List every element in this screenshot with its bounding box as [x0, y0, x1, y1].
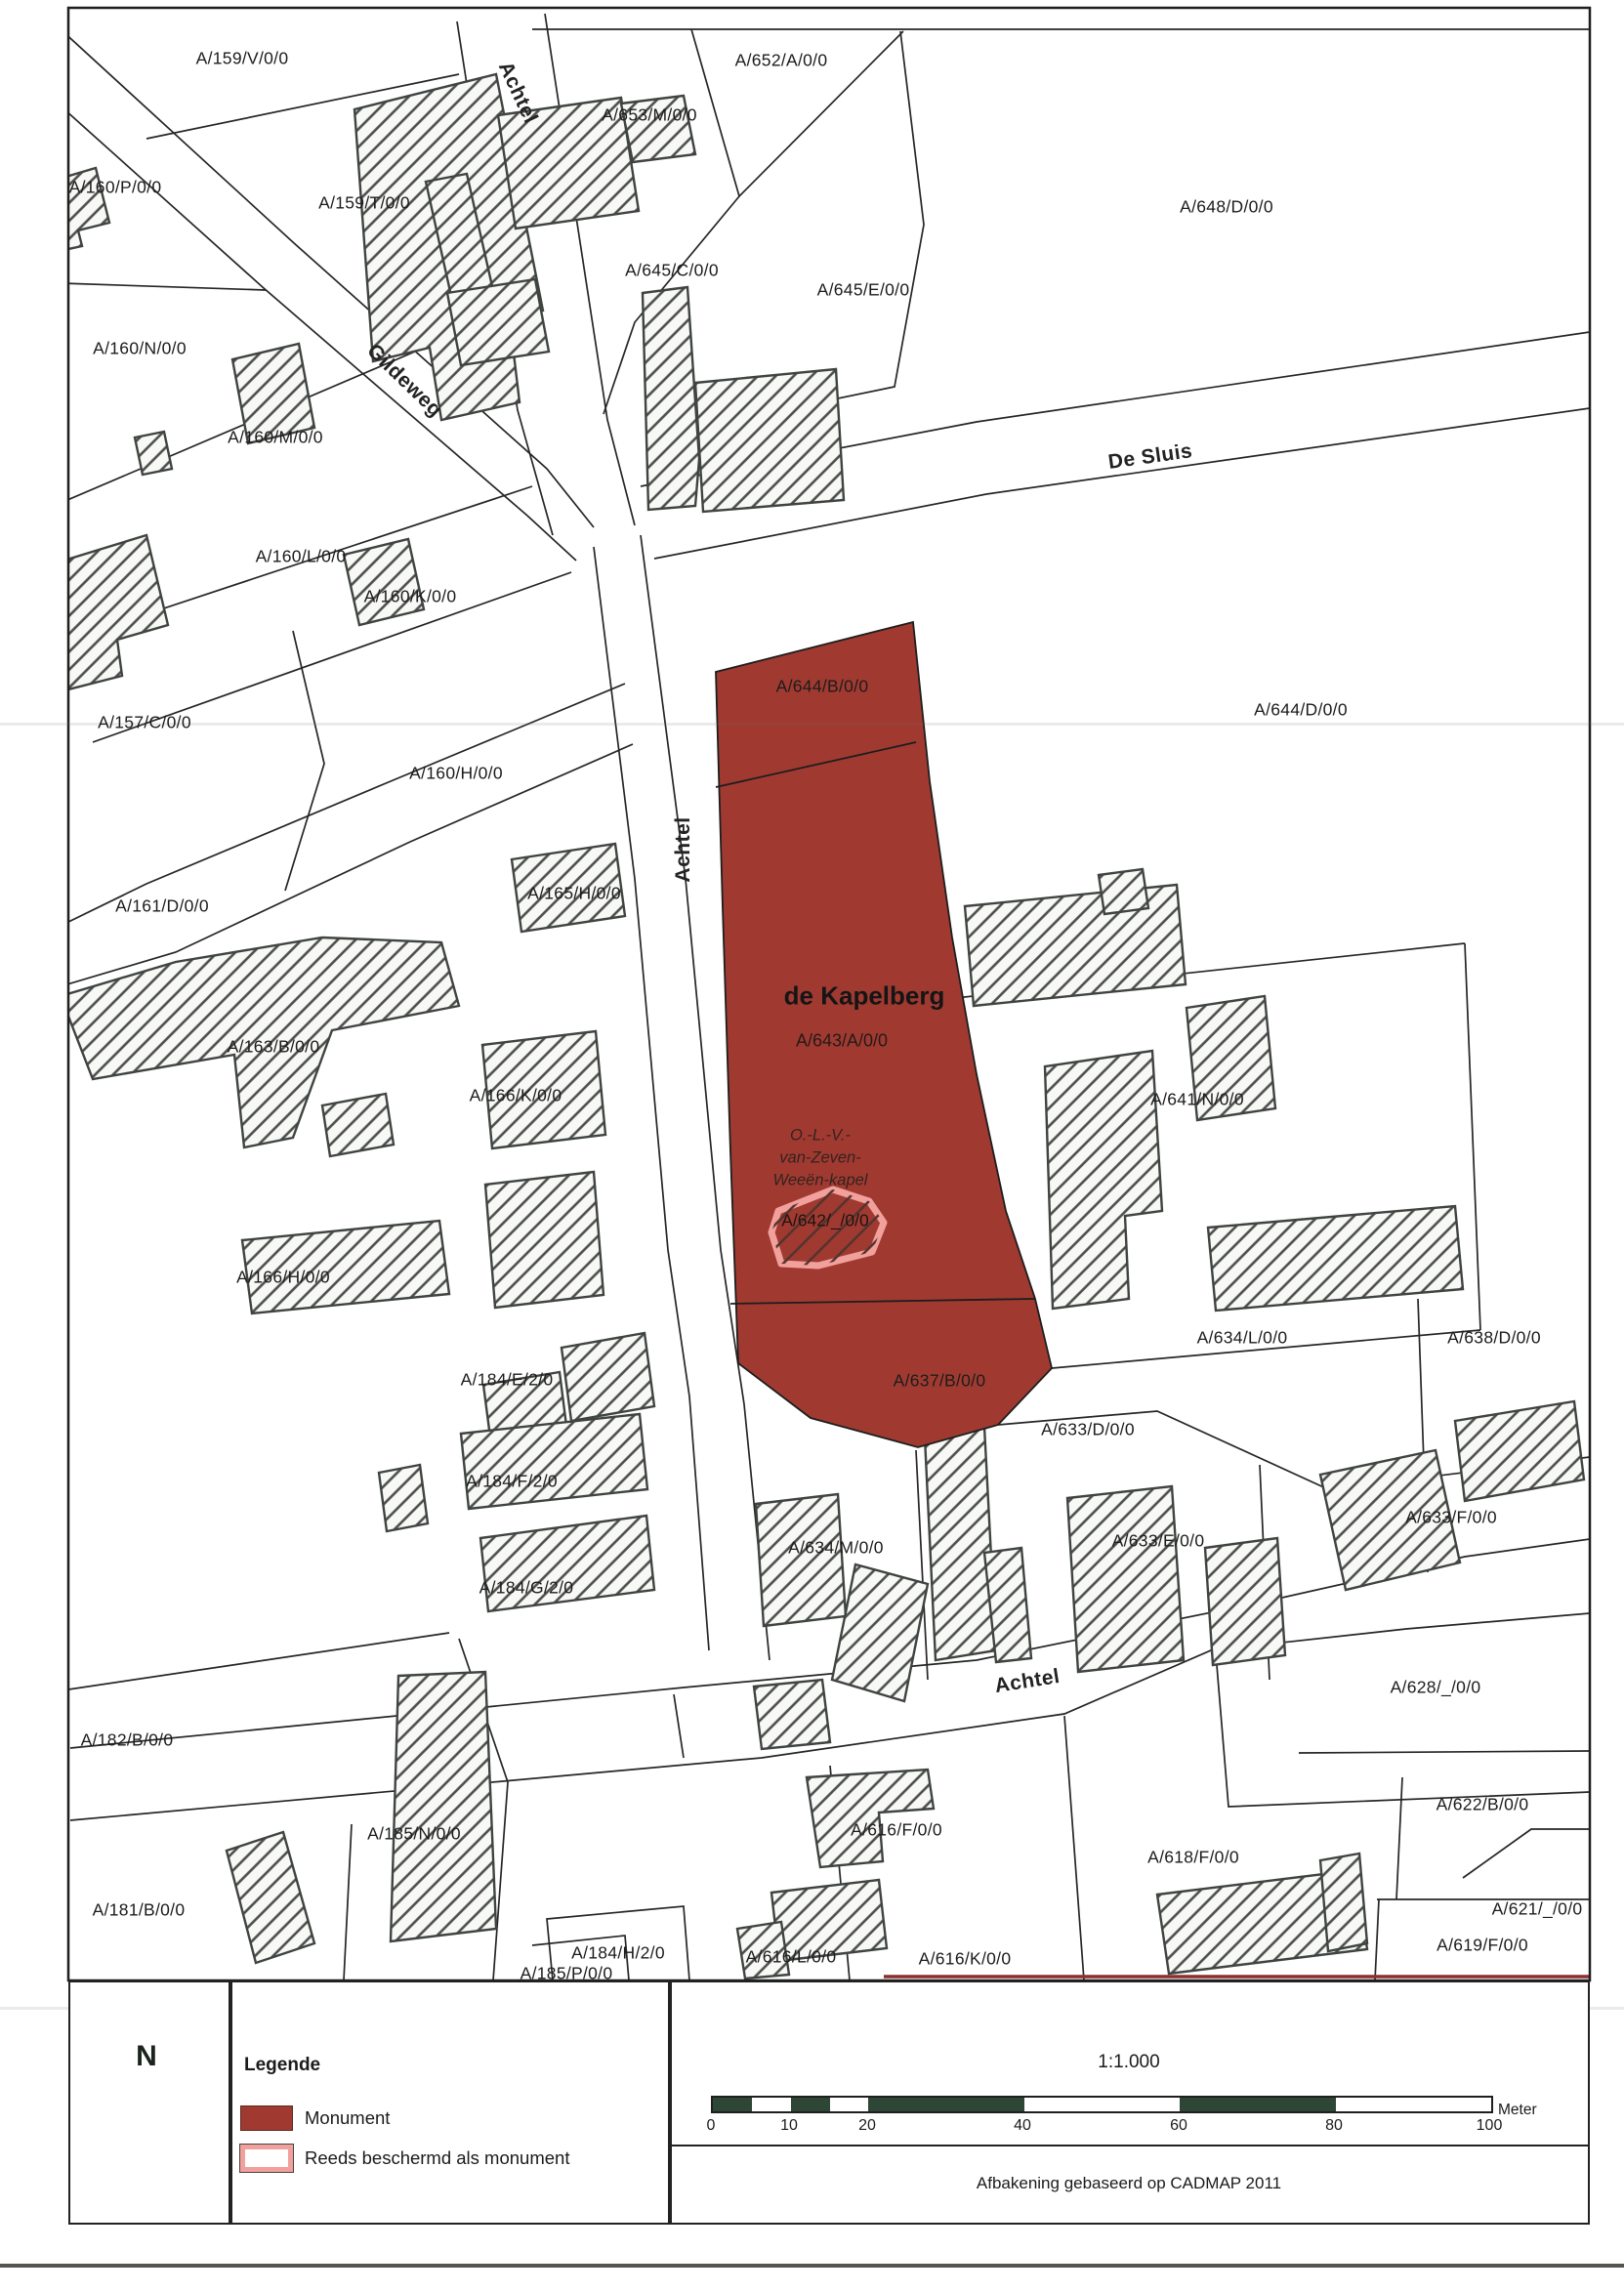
legend-title: Legende [244, 2055, 320, 2076]
parcel-label: A/161/D/0/0 [115, 896, 209, 917]
parcel-label: A/652/A/0/0 [735, 51, 828, 71]
scale-bar-segment [1336, 2098, 1491, 2111]
parcel-label: A/634/L/0/0 [1197, 1328, 1288, 1349]
chapel-name-line: Weeën-kapel [773, 1170, 868, 1192]
scale-bar-segment [791, 2098, 830, 2111]
parcel-label: A/182/B/0/0 [81, 1730, 174, 1751]
scale-tick-label: 0 [707, 2117, 716, 2135]
scale-tick-label: 60 [1170, 2117, 1187, 2135]
page-edge-line [0, 2264, 1624, 2268]
scale-tick-label: 10 [780, 2117, 798, 2135]
chapel-parcel-label: A/642/_/0/0 [781, 1211, 869, 1231]
parcel-label: A/633/F/0/0 [1405, 1508, 1497, 1528]
scale-bar-segment [830, 2098, 869, 2111]
chapel-name: O.-L.-V.- van-Zeven- Weeën-kapel [773, 1125, 868, 1192]
chapel-name-line: O.-L.-V.- [773, 1125, 868, 1147]
parcel-label: A/160/P/0/0 [69, 178, 162, 198]
compass-box [68, 1980, 230, 2225]
scale-bar-segment [713, 2098, 752, 2111]
legend-box [230, 1980, 670, 2225]
parcel-label: A/616/F/0/0 [851, 1820, 942, 1841]
parcel-label: A/618/F/0/0 [1147, 1848, 1239, 1868]
parcel-label: A/648/D/0/0 [1180, 197, 1273, 218]
legend-monument-label: Monument [305, 2107, 390, 2129]
parcel-label: A/159/T/0/0 [318, 193, 410, 214]
scale-bar-segment [1180, 2098, 1335, 2111]
scale-bar-segment [752, 2098, 791, 2111]
chapel-name-line: van-Zeven- [773, 1147, 868, 1170]
parcel-label: A/157/C/0/0 [98, 713, 191, 733]
parcel-label: A/619/F/0/0 [1437, 1936, 1528, 1956]
scale-unit-label: Meter [1498, 2102, 1537, 2119]
parcel-label: A/616/L/0/0 [746, 1947, 837, 1968]
parcel-label: A/160/K/0/0 [364, 587, 457, 607]
parcel-label: A/181/B/0/0 [93, 1900, 186, 1921]
legend-monument-swatch [240, 2105, 293, 2131]
parcel-label: A/185/N/0/0 [367, 1824, 461, 1845]
scan-artifact [0, 723, 1624, 726]
parcel-label: A/166/K/0/0 [470, 1086, 562, 1106]
parcel-label: A/653/M/0/0 [602, 105, 697, 126]
parcel-label: A/160/L/0/0 [256, 547, 347, 567]
compass-north-label: N [136, 2040, 157, 2073]
source-caption: Afbakening gebaseerd op CADMAP 2011 [977, 2174, 1281, 2193]
parcel-label: A/628/_/0/0 [1391, 1678, 1481, 1698]
parcel-label: A/621/_/0/0 [1492, 1899, 1583, 1920]
scale-bar-segment [1024, 2098, 1180, 2111]
parcel-label: A/638/D/0/0 [1447, 1328, 1541, 1349]
cadastral-map-page: AchtelGildewegDe SluisAchtelAchtel A/159… [0, 0, 1624, 2292]
scale-bar-segment [868, 2098, 1023, 2111]
parcel-label: A/160/N/0/0 [93, 339, 187, 359]
street-label: Achtel [672, 816, 695, 882]
parcel-label: A/184/E/2/0 [461, 1370, 554, 1391]
parcel-label: A/165/H/0/0 [527, 884, 621, 904]
scale-tick-label: 100 [1477, 2117, 1503, 2135]
parcel-label: A/160/M/0/0 [228, 428, 323, 448]
parcel-label: A/166/H/0/0 [236, 1268, 330, 1288]
scale-tick-label: 20 [858, 2117, 876, 2135]
parcel-label: A/641/N/0/0 [1150, 1090, 1244, 1110]
parcel-label: A/633/D/0/0 [1041, 1420, 1135, 1440]
scale-tick-label: 80 [1325, 2117, 1343, 2135]
parcel-label: A/633/E/0/0 [1112, 1531, 1205, 1552]
legend-protected-swatch [240, 2145, 293, 2172]
parcel-label: A/184/H/2/0 [571, 1943, 665, 1964]
scale-box-divider [670, 2145, 1590, 2146]
scale-bar [711, 2096, 1493, 2113]
monument-title: de Kapelberg [784, 981, 945, 1012]
parcel-label: A/644/B/0/0 [776, 677, 869, 697]
parcel-label: A/644/D/0/0 [1254, 700, 1348, 721]
parcel-label: A/184/F/2/0 [466, 1472, 558, 1492]
parcel-label: A/160/H/0/0 [409, 764, 503, 784]
parcel-label: A/616/K/0/0 [919, 1949, 1012, 1970]
parcel-label: A/163/B/0/0 [228, 1037, 320, 1058]
parcel-label: A/645/C/0/0 [625, 261, 719, 281]
legend-protected-label: Reeds beschermd als monument [305, 2147, 569, 2169]
parcel-label: A/622/B/0/0 [1437, 1795, 1529, 1815]
monument-parcel-label: A/643/A/0/0 [796, 1031, 888, 1052]
parcel-label: A/184/G/2/0 [479, 1578, 574, 1599]
parcel-label: A/634/M/0/0 [788, 1538, 884, 1559]
map-scale-ratio: 1:1.000 [1098, 2052, 1159, 2073]
parcel-label: A/159/V/0/0 [196, 49, 289, 69]
parcel-label: A/645/E/0/0 [817, 280, 910, 301]
scale-tick-label: 40 [1014, 2117, 1031, 2135]
parcel-label: A/637/B/0/0 [894, 1371, 986, 1392]
